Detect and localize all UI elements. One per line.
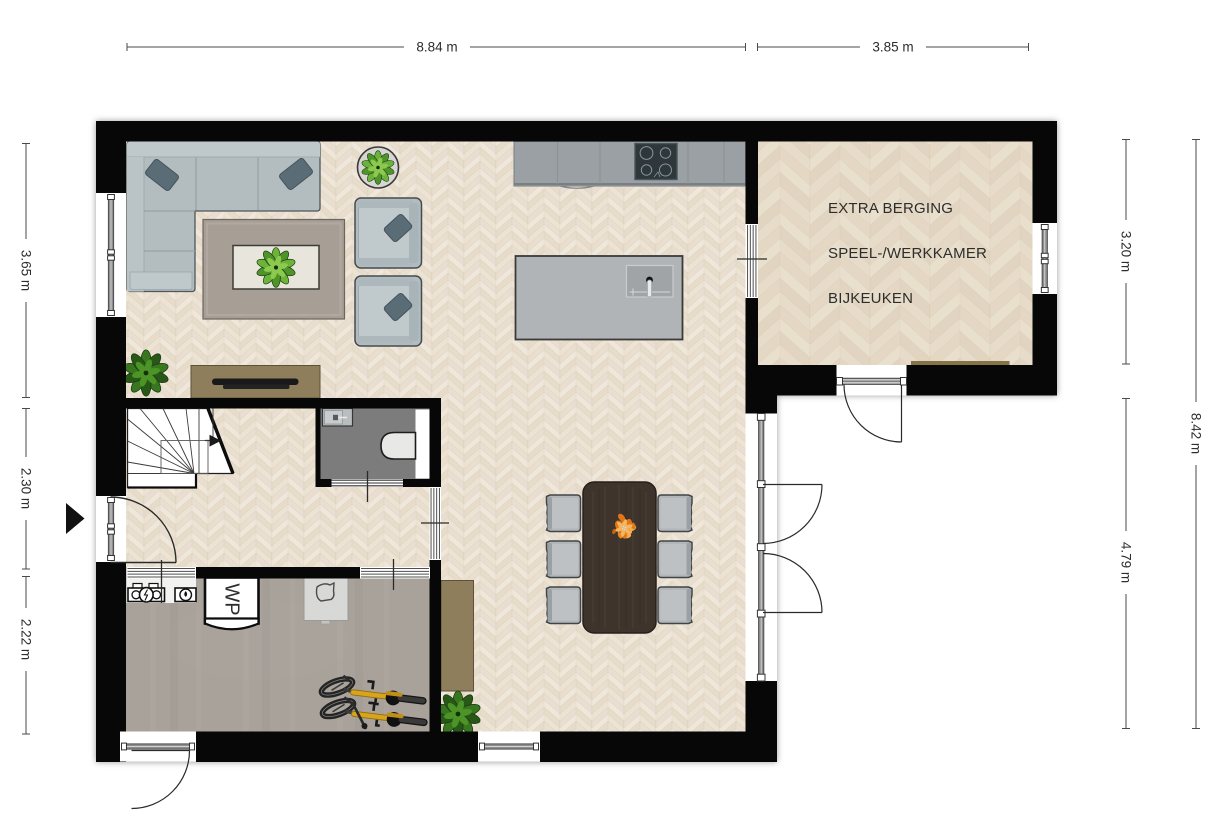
- svg-text:3.20 m: 3.20 m: [1119, 231, 1134, 272]
- svg-text:BIJKEUKEN: BIJKEUKEN: [828, 290, 913, 307]
- svg-text:2.30 m: 2.30 m: [19, 468, 34, 509]
- svg-text:8.42 m: 8.42 m: [1189, 413, 1204, 454]
- svg-text:3.65 m: 3.65 m: [19, 250, 34, 291]
- svg-text:SPEEL-/WERKKAMER: SPEEL-/WERKKAMER: [828, 245, 987, 262]
- svg-text:3.85 m: 3.85 m: [872, 40, 913, 55]
- svg-text:4.79 m: 4.79 m: [1119, 542, 1134, 583]
- svg-text:WP: WP: [221, 583, 243, 615]
- svg-text:EXTRA BERGING: EXTRA BERGING: [828, 200, 953, 217]
- svg-text:2.22 m: 2.22 m: [19, 619, 34, 660]
- svg-text:8.84 m: 8.84 m: [416, 40, 457, 55]
